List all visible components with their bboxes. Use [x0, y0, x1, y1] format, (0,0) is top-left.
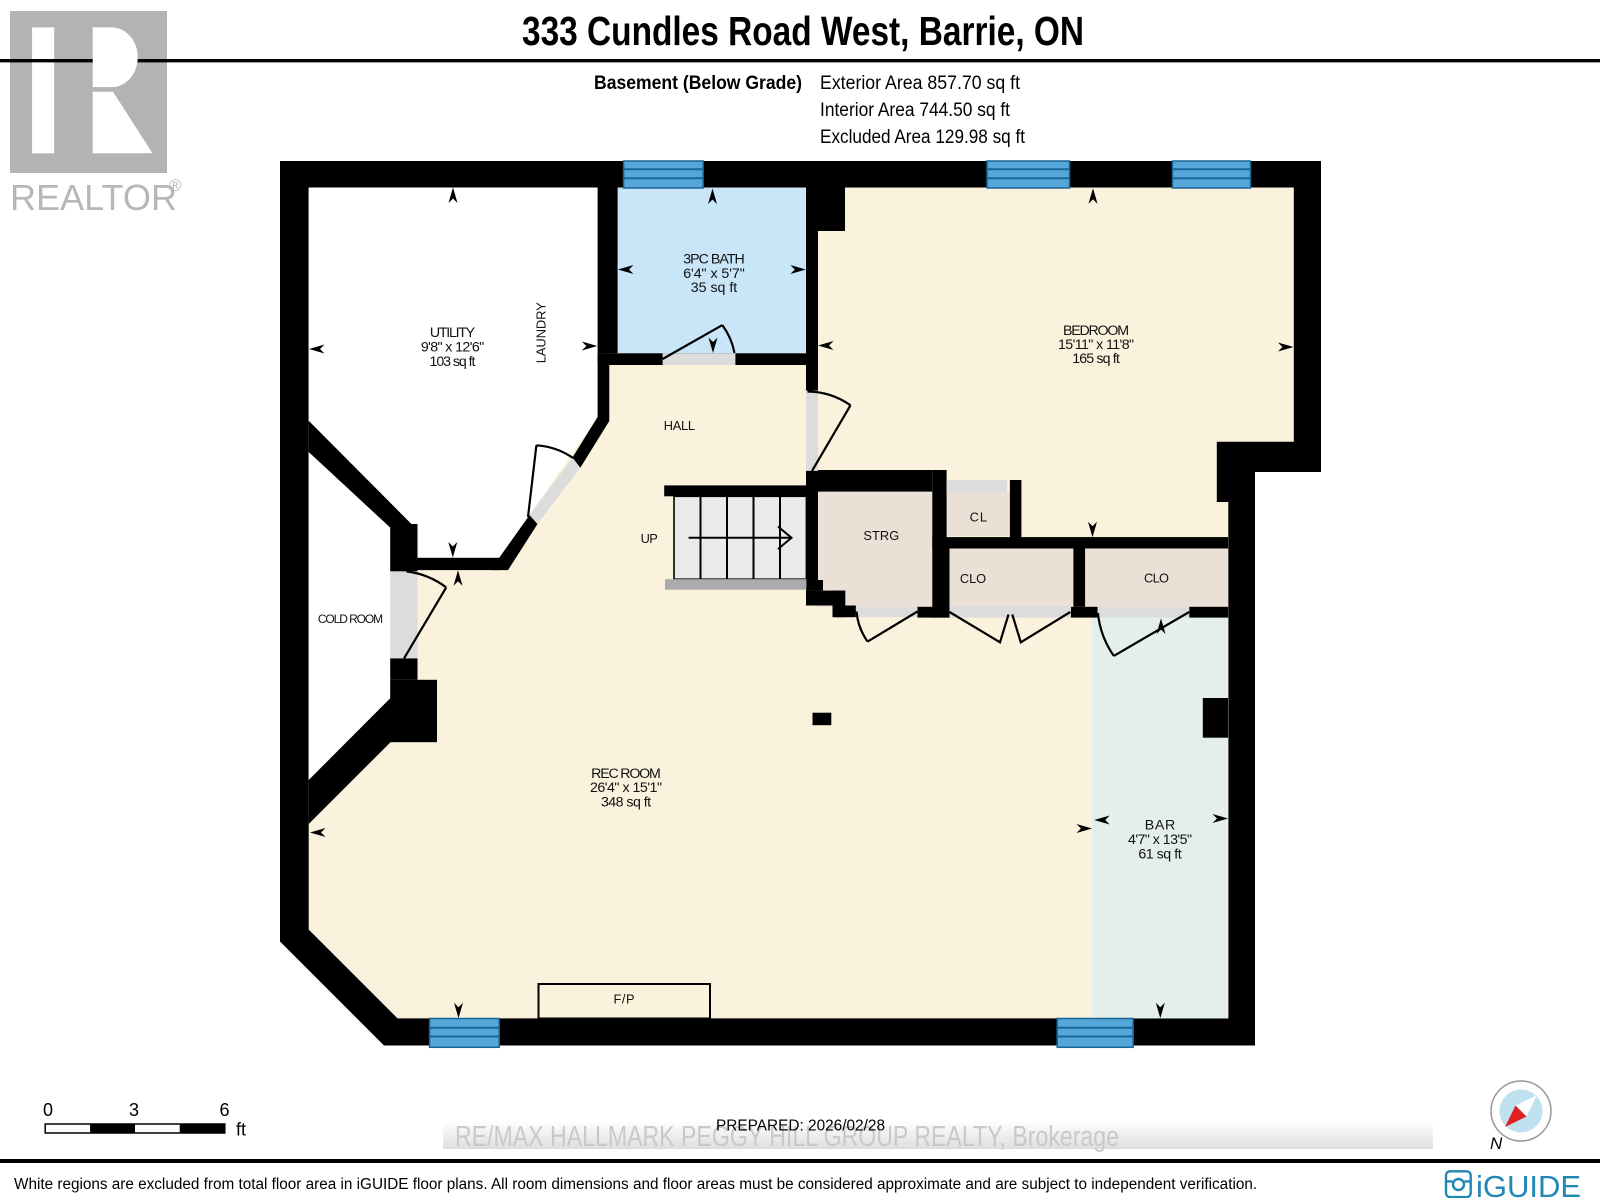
svg-text:333 Cundles Road West, Barrie,: 333 Cundles Road West, Barrie, ON — [522, 8, 1084, 54]
svg-text:6: 6 — [219, 1100, 229, 1120]
svg-text:26'4" x 15'1": 26'4" x 15'1" — [590, 780, 662, 796]
svg-text:CL: CL — [970, 510, 987, 525]
svg-text:ft: ft — [236, 1119, 246, 1139]
svg-text:165 sq ft: 165 sq ft — [1072, 351, 1120, 367]
svg-text:HALL: HALL — [664, 418, 695, 433]
svg-text:N: N — [1490, 1134, 1503, 1153]
svg-text:348 sq ft: 348 sq ft — [601, 795, 651, 811]
svg-text:PREPARED: 2026/02/28: PREPARED: 2026/02/28 — [716, 1118, 885, 1135]
svg-text:35 sq ft: 35 sq ft — [691, 280, 738, 296]
svg-text:REALTOR: REALTOR — [10, 177, 177, 218]
svg-text:61 sq ft: 61 sq ft — [1138, 847, 1181, 863]
svg-text:iGUIDE: iGUIDE — [1476, 1169, 1581, 1198]
svg-text:UP: UP — [641, 531, 658, 546]
svg-text:Interior Area 744.50 sq ft: Interior Area 744.50 sq ft — [820, 100, 1011, 121]
svg-text:Basement (Below Grade): Basement (Below Grade) — [594, 72, 802, 94]
svg-text:®: ® — [169, 176, 182, 195]
svg-text:STRG: STRG — [863, 528, 899, 543]
svg-text:F/P: F/P — [614, 992, 635, 1007]
svg-text:Excluded Area 129.98 sq ft: Excluded Area 129.98 sq ft — [820, 127, 1026, 148]
svg-text:103 sq ft: 103 sq ft — [430, 354, 476, 370]
svg-text:Exterior Area 857.70 sq ft: Exterior Area 857.70 sq ft — [820, 73, 1021, 94]
svg-text:3: 3 — [129, 1100, 139, 1120]
svg-text:CLO: CLO — [1144, 571, 1169, 586]
svg-text:0: 0 — [43, 1100, 53, 1120]
svg-text:COLD ROOM: COLD ROOM — [318, 612, 383, 626]
svg-text:LAUNDRY: LAUNDRY — [534, 302, 549, 363]
svg-text:CLO: CLO — [960, 571, 986, 586]
svg-text:White regions are excluded fro: White regions are excluded from total fl… — [14, 1176, 1257, 1193]
